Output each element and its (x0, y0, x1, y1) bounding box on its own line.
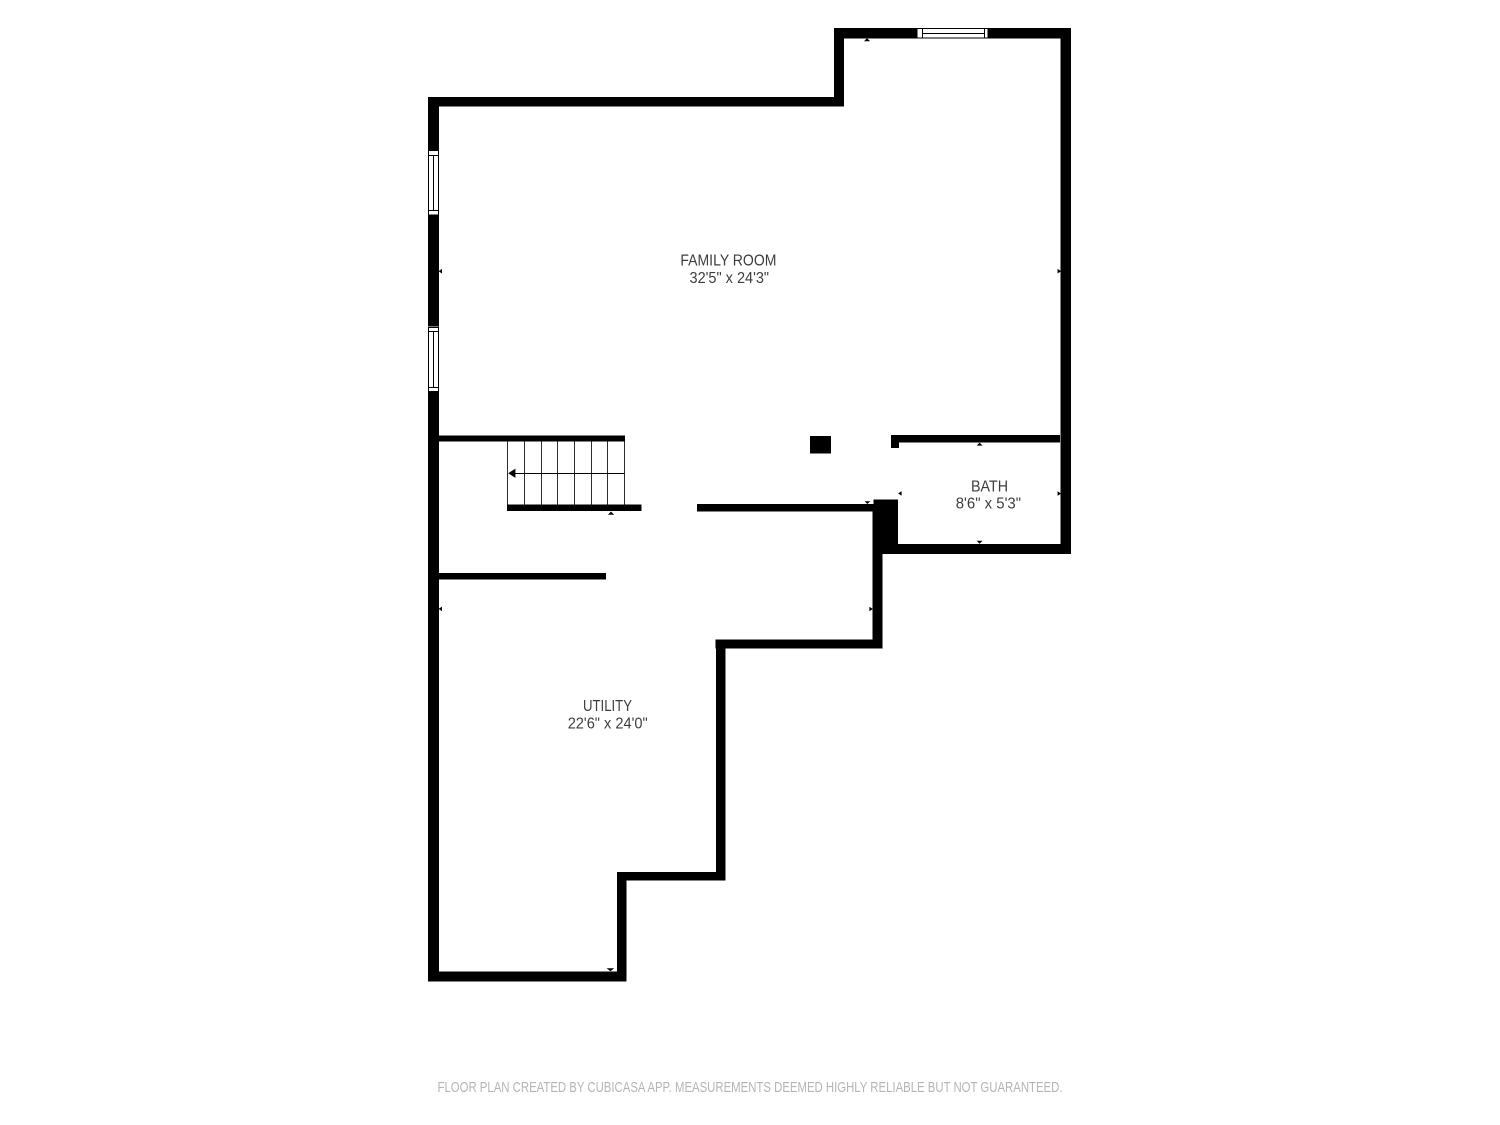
svg-text:FAMILY ROOM: FAMILY ROOM (680, 252, 776, 269)
svg-text:32'5" x 24'3": 32'5" x 24'3" (690, 270, 770, 287)
svg-text:8'6" x 5'3": 8'6" x 5'3" (956, 496, 1021, 513)
svg-text:BATH: BATH (971, 478, 1008, 495)
svg-text:UTILITY: UTILITY (583, 698, 632, 715)
svg-text:FLOOR PLAN CREATED BY CUBICASA: FLOOR PLAN CREATED BY CUBICASA APP. MEAS… (438, 1079, 1063, 1096)
svg-text:22'6" x 24'0": 22'6" x 24'0" (568, 716, 648, 733)
